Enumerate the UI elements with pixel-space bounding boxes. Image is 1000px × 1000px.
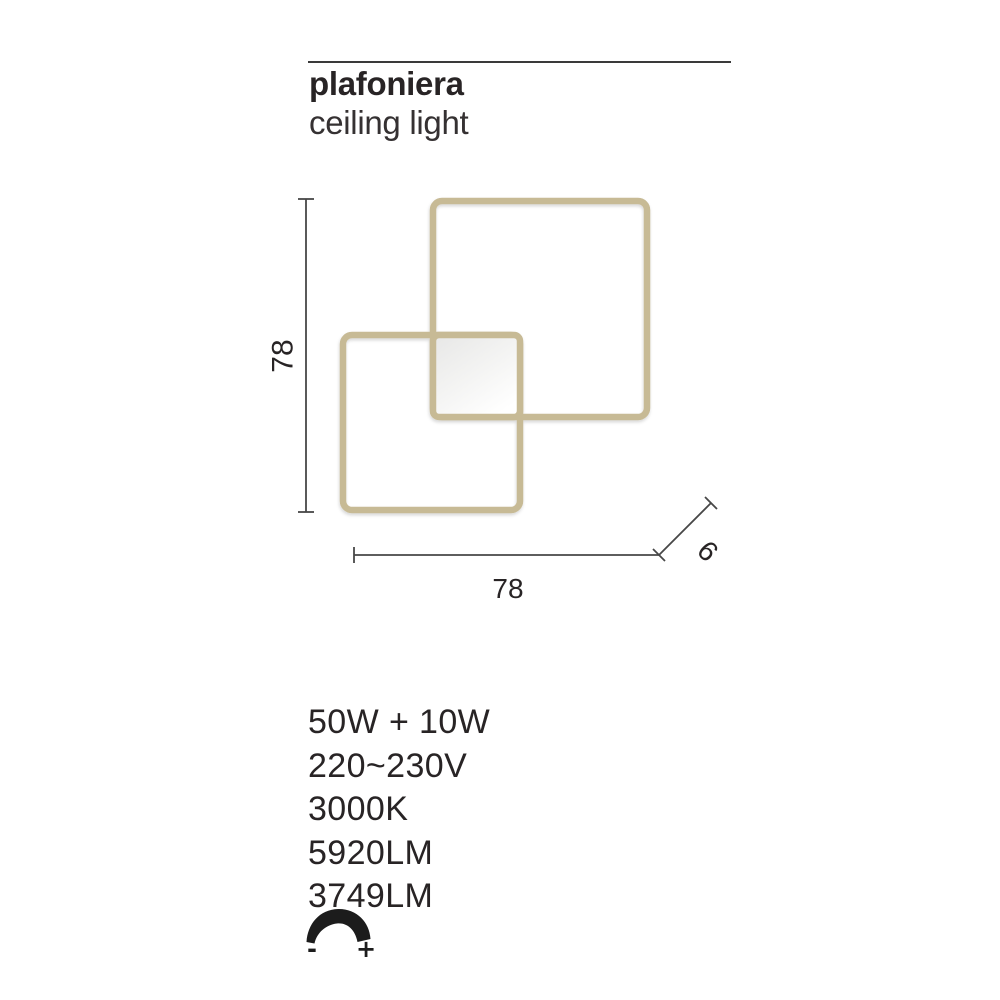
- spec-color-temperature: 3000K: [308, 788, 490, 832]
- spec-wattage: 50W + 10W: [308, 701, 490, 745]
- depth-dimension-value: 9: [692, 535, 725, 568]
- spec-lumen-output-1: 5920LM: [308, 832, 490, 876]
- product-spec-page: plafoniera ceiling light: [0, 0, 1000, 1000]
- dimmer-plus-icon: +: [356, 935, 376, 963]
- lamp-frames: [343, 201, 647, 510]
- width-dimension-value: 78: [492, 573, 523, 604]
- height-dimension-value: 78: [267, 339, 300, 372]
- dimmer-minus-icon: -: [307, 935, 317, 963]
- spec-lumen-output-2: 3749LM: [308, 875, 490, 919]
- specs-list: 50W + 10W 220~230V 3000K 5920LM 3749LM: [308, 701, 490, 919]
- spec-voltage: 220~230V: [308, 745, 490, 789]
- technical-drawing: 78 78 9 - +: [0, 0, 1000, 1000]
- central-led-panel: [433, 335, 520, 417]
